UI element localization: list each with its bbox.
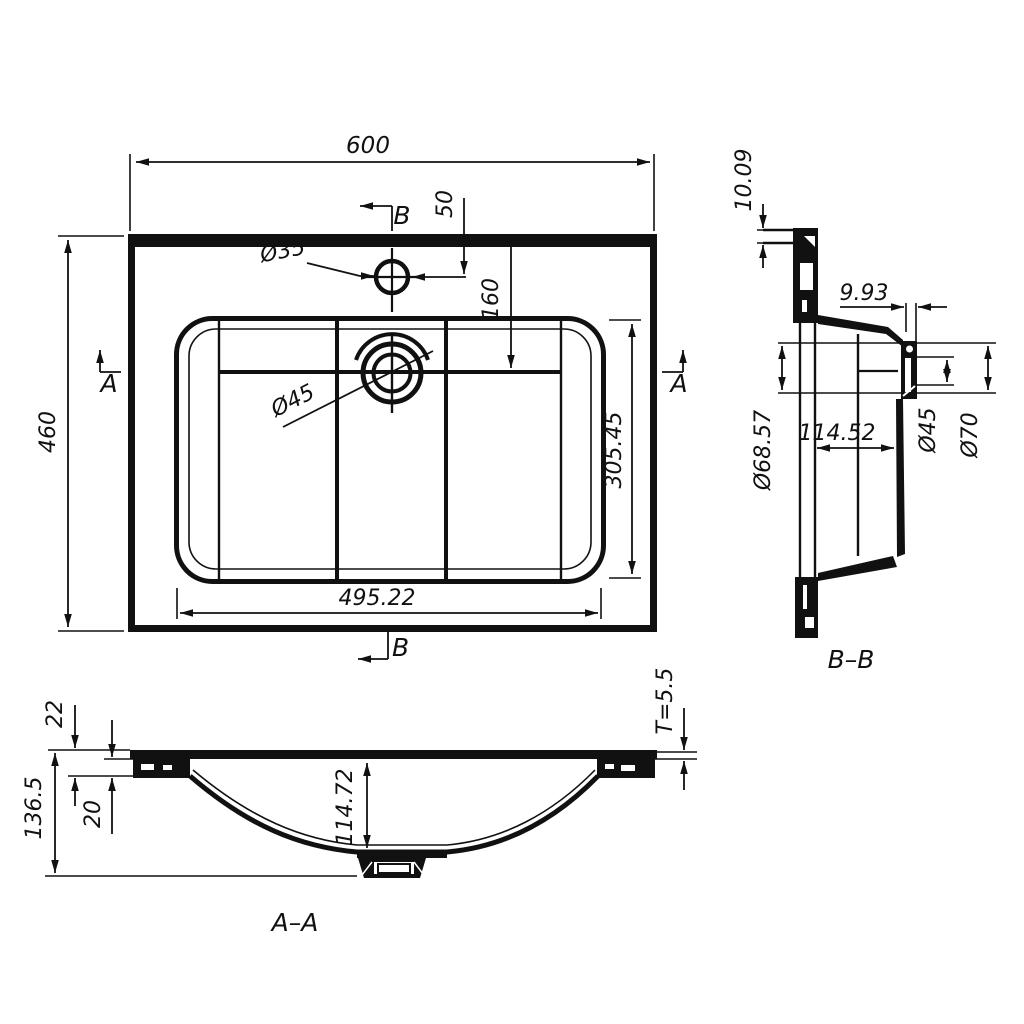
dim-305-text: 305.45 bbox=[602, 412, 627, 489]
section-b-letter-bottom: B bbox=[392, 633, 409, 662]
dim-11452-text: 114.52 bbox=[799, 421, 876, 446]
hatch-gap bbox=[163, 765, 172, 770]
plan-view: 600 460 B B A A bbox=[36, 133, 688, 662]
section-aa-label: A–A bbox=[270, 908, 319, 937]
dim-bowl-inner-depth: 114.72 bbox=[333, 763, 367, 848]
technical-drawing-basin: 600 460 B B A A bbox=[0, 0, 1024, 1024]
plan-outer-left-edge bbox=[128, 234, 135, 632]
dim-1009-text: 10.09 bbox=[732, 149, 757, 212]
dim-50-text: 50 bbox=[433, 190, 458, 218]
dim-overall-depth: 460 bbox=[36, 236, 124, 631]
section-bb-label: B–B bbox=[828, 645, 875, 674]
dim-495-text: 495.22 bbox=[339, 586, 416, 611]
dim-rim-height-inner: 20 bbox=[81, 720, 133, 834]
faucet-hole-section-gap bbox=[800, 263, 813, 290]
section-b-letter-top: B bbox=[393, 201, 410, 230]
section-aa-view: T=5.5 22 20 136.5 114.72 A–A bbox=[22, 668, 697, 937]
section-marker-a-right: A bbox=[662, 350, 688, 398]
bowl-inner-curve bbox=[193, 770, 595, 845]
drain-boss-gap bbox=[905, 358, 911, 392]
bowl-front-wall-section bbox=[896, 399, 905, 557]
bowl-inner-rim bbox=[189, 329, 591, 569]
plan-outer-right-edge bbox=[650, 234, 657, 632]
plan-outer-bottom-edge bbox=[128, 625, 657, 632]
dim-bowl-width: 495.22 bbox=[177, 586, 601, 619]
dim-600-text: 600 bbox=[346, 133, 390, 159]
dim-1365-text: 136.5 bbox=[22, 777, 47, 840]
dim-993-text: 9.93 bbox=[840, 281, 889, 306]
foot-hole bbox=[805, 617, 814, 628]
dim-drain-hole-dia: Ø45 bbox=[916, 360, 947, 454]
dim-o70-text: Ø70 bbox=[958, 412, 983, 458]
dim-460-text: 460 bbox=[36, 411, 61, 453]
foot-slot bbox=[803, 585, 807, 609]
dim-bowl-depth-at-drain: 114.52 bbox=[799, 421, 894, 448]
plan-outer-top-edge bbox=[128, 234, 657, 247]
dim-11472-text: 114.72 bbox=[333, 769, 358, 846]
section-bb-view: 10.09 9.93 Ø68.57 Ø70 Ø45 114.52 bbox=[732, 149, 996, 674]
drawing-canvas: 600 460 B B A A bbox=[0, 0, 1024, 1024]
section-a-letter-right: A bbox=[668, 369, 687, 398]
section-marker-b-top: B bbox=[360, 201, 411, 231]
dim-bowl-depth: 305.45 bbox=[602, 320, 641, 578]
dim-drain-offset: 160 bbox=[479, 237, 511, 368]
bowl-outer-rim bbox=[177, 319, 604, 582]
dim-160-text: 160 bbox=[479, 278, 504, 320]
hatch-gap bbox=[141, 764, 154, 770]
section-marker-a-left: A bbox=[98, 350, 121, 398]
bowl-outer-curve bbox=[190, 776, 598, 852]
dim-t55-text: T=5.5 bbox=[653, 668, 678, 735]
dim-22-text: 22 bbox=[43, 700, 68, 728]
top-plate-section bbox=[130, 750, 657, 759]
dim-20-text: 20 bbox=[81, 800, 106, 828]
dim-o45-bb-text: Ø45 bbox=[916, 407, 941, 453]
section-a-letter-left: A bbox=[98, 369, 117, 398]
hatch-gap bbox=[621, 765, 635, 771]
hatch-gap bbox=[605, 764, 614, 769]
dim-drain-flange-dia: Ø70 bbox=[958, 346, 988, 459]
section-marker-b-bottom: B bbox=[358, 632, 409, 662]
dim-faucet-offset: 50 bbox=[412, 190, 466, 277]
bowl-bottom-section bbox=[818, 556, 897, 581]
dim-o6857-text: Ø68.57 bbox=[751, 410, 776, 491]
dim-drain-seat-dia: Ø68.57 bbox=[751, 346, 782, 491]
hatch-gap bbox=[802, 300, 807, 312]
dim-rim-height-outer: 22 bbox=[43, 700, 133, 806]
dim-rear-thickness: 10.09 bbox=[732, 149, 795, 268]
overflow-hole bbox=[906, 346, 913, 353]
dim-plate-thickness: T=5.5 bbox=[653, 668, 697, 790]
dim-o45-plan-text: Ø45 bbox=[266, 380, 319, 423]
